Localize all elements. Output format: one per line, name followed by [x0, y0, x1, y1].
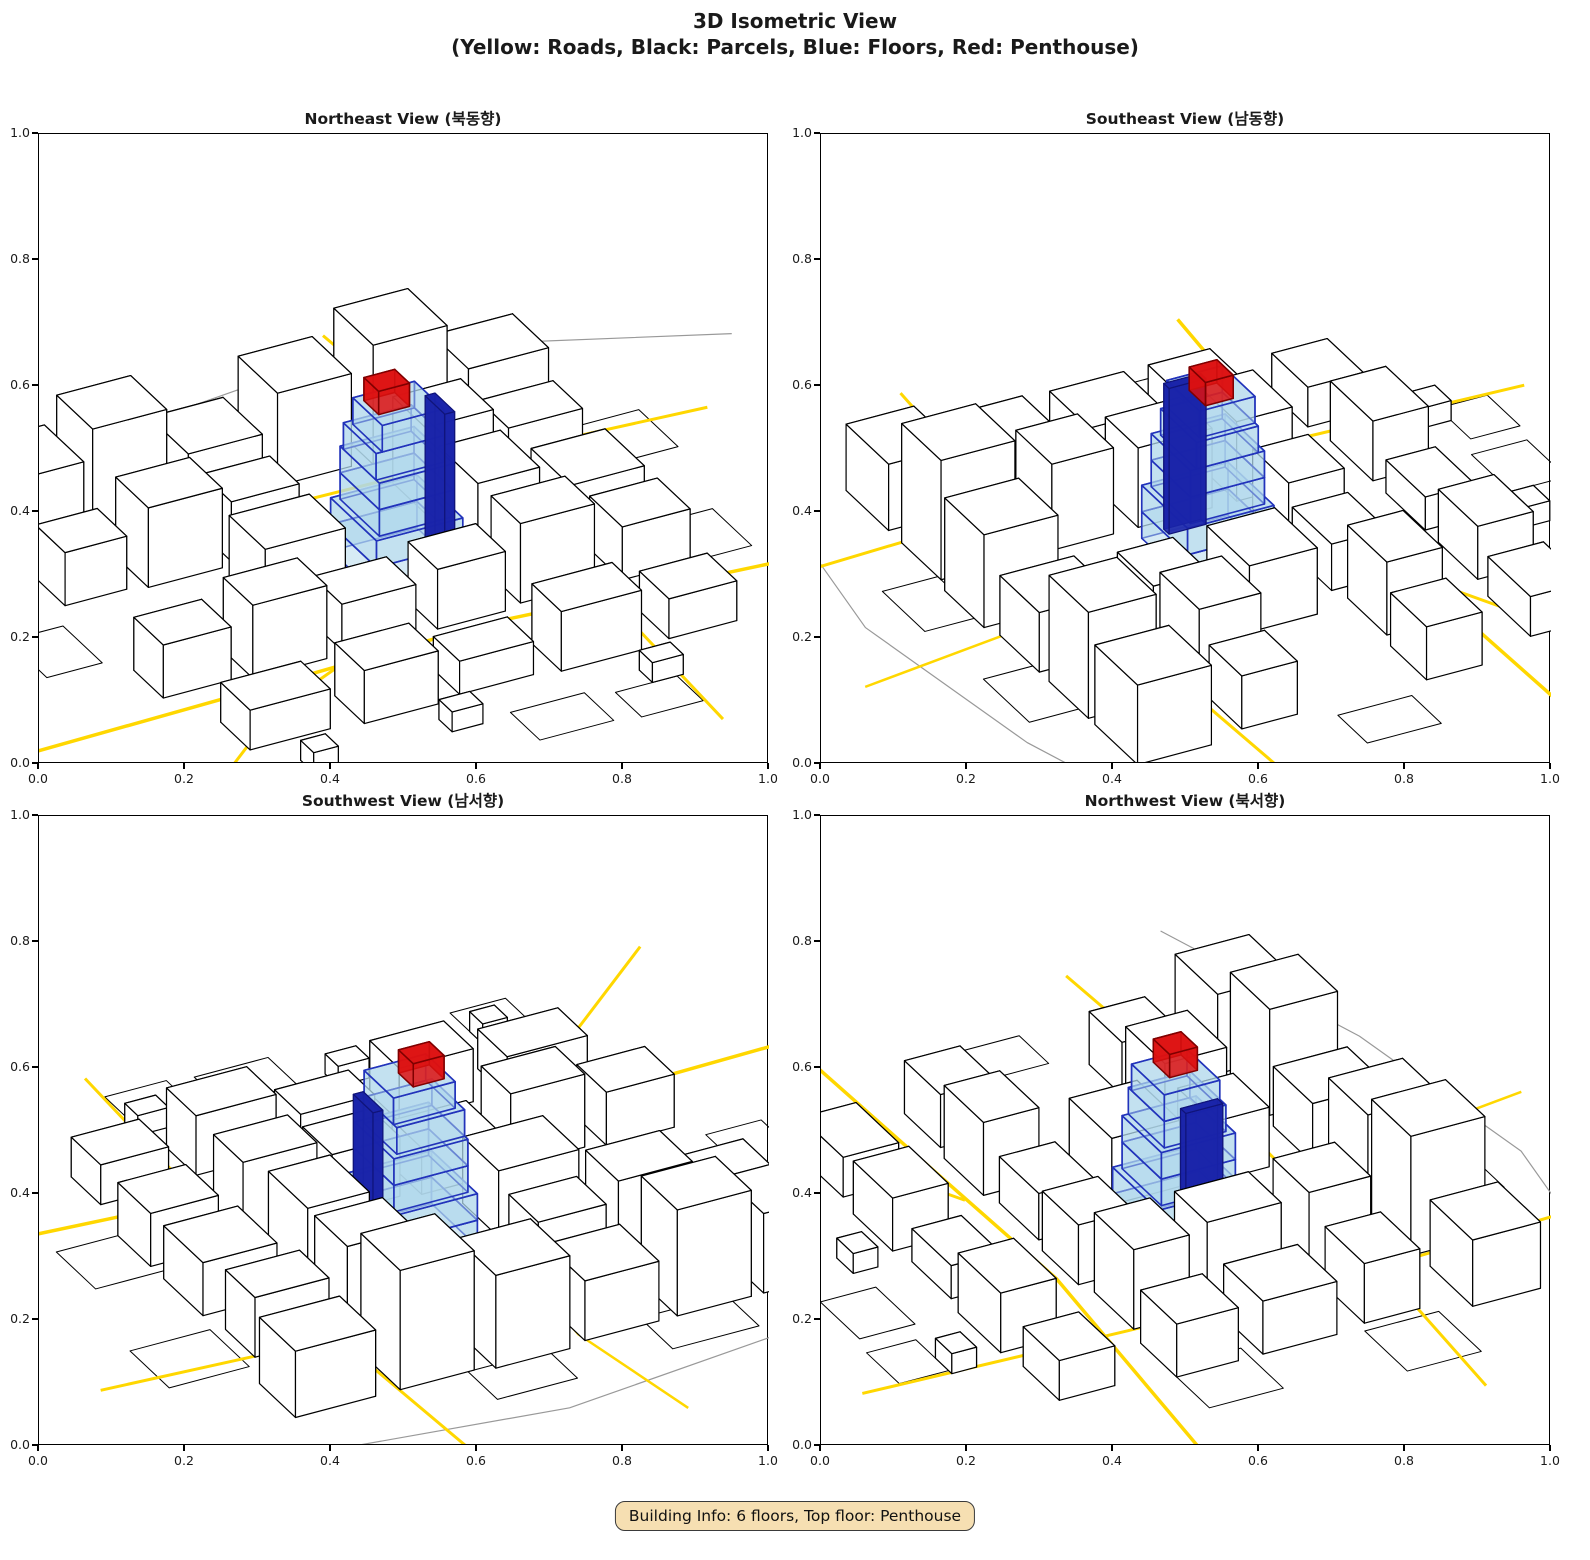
buildings-layer [821, 935, 1540, 1401]
subplot-title-southwest: Southwest View (남서향) [38, 789, 768, 811]
x-tick-label: 0.6 [1239, 1453, 1277, 1468]
y-tick-label: 0.2 [0, 1311, 30, 1326]
x-tick-mark [819, 1445, 820, 1451]
x-tick-mark [965, 1445, 966, 1451]
x-tick-mark [819, 763, 820, 769]
x-tick-label: 0.6 [457, 1453, 495, 1468]
x-tick-label: 0.4 [311, 771, 349, 786]
plot-area-southeast [820, 133, 1550, 763]
x-tick-label: 0.2 [165, 1453, 203, 1468]
y-tick-label: 1.0 [772, 125, 812, 140]
x-tick-mark [621, 763, 622, 769]
x-tick-mark [1549, 1445, 1550, 1451]
southwest-scene [39, 816, 769, 1444]
y-tick-mark [32, 636, 38, 637]
y-tick-mark [814, 814, 820, 815]
y-tick-mark [814, 1318, 820, 1319]
y-tick-label: 0.2 [0, 629, 30, 644]
x-tick-label: 0.2 [947, 1453, 985, 1468]
x-tick-label: 0.6 [457, 771, 495, 786]
y-tick-mark [814, 1192, 820, 1193]
northeast-scene [39, 134, 769, 762]
buildings-layer [39, 289, 737, 762]
figure-title-line2: (Yellow: Roads, Black: Parcels, Blue: Fl… [0, 34, 1590, 60]
x-tick-mark [37, 1445, 38, 1451]
x-tick-label: 1.0 [749, 771, 787, 786]
x-tick-label: 1.0 [1531, 1453, 1569, 1468]
y-tick-mark [32, 384, 38, 385]
y-tick-mark [814, 258, 820, 259]
y-tick-mark [32, 258, 38, 259]
x-tick-mark [1403, 763, 1404, 769]
y-tick-label: 0.0 [772, 755, 812, 770]
y-tick-mark [32, 510, 38, 511]
y-tick-label: 0.4 [0, 1185, 30, 1200]
y-tick-label: 0.4 [772, 1185, 812, 1200]
x-tick-label: 1.0 [749, 1453, 787, 1468]
x-tick-label: 0.8 [1385, 1453, 1423, 1468]
x-tick-mark [329, 763, 330, 769]
y-tick-label: 0.0 [0, 1437, 30, 1452]
x-tick-label: 0.4 [311, 1453, 349, 1468]
plot-area-southwest [38, 815, 768, 1445]
y-tick-label: 0.6 [0, 1059, 30, 1074]
buildings-layer [846, 339, 1551, 762]
y-tick-label: 0.8 [0, 251, 30, 266]
subplot-title-northeast: Northeast View (북동향) [38, 107, 768, 129]
x-tick-mark [767, 763, 768, 769]
y-tick-mark [814, 510, 820, 511]
y-tick-mark [32, 1192, 38, 1193]
y-tick-mark [32, 132, 38, 133]
northwest-scene [821, 816, 1551, 1444]
x-tick-mark [621, 1445, 622, 1451]
x-tick-mark [329, 1445, 330, 1451]
y-tick-label: 0.2 [772, 629, 812, 644]
x-tick-label: 0.0 [801, 1453, 839, 1468]
y-tick-label: 0.6 [772, 1059, 812, 1074]
x-tick-mark [1257, 1445, 1258, 1451]
y-tick-mark [32, 1318, 38, 1319]
x-tick-label: 0.4 [1093, 771, 1131, 786]
subplot-title-southeast: Southeast View (남동향) [820, 107, 1550, 129]
southeast-scene [821, 134, 1551, 762]
x-tick-mark [767, 1445, 768, 1451]
y-tick-mark [814, 636, 820, 637]
x-tick-mark [183, 763, 184, 769]
x-tick-label: 0.4 [1093, 1453, 1131, 1468]
x-tick-label: 0.0 [801, 771, 839, 786]
x-tick-label: 0.8 [1385, 771, 1423, 786]
y-tick-label: 0.8 [0, 933, 30, 948]
buildings-layer [71, 1005, 769, 1417]
subplot-title-northwest: Northwest View (북서향) [820, 789, 1550, 811]
x-tick-label: 0.8 [603, 1453, 641, 1468]
y-tick-label: 0.6 [0, 377, 30, 392]
building-info-badge: Building Info: 6 floors, Top floor: Pent… [615, 1501, 975, 1531]
x-tick-mark [1549, 763, 1550, 769]
plot-area-northwest [820, 815, 1550, 1445]
y-tick-label: 1.0 [772, 807, 812, 822]
y-tick-mark [32, 940, 38, 941]
y-tick-label: 1.0 [0, 807, 30, 822]
y-tick-label: 0.8 [772, 251, 812, 266]
y-tick-mark [814, 1066, 820, 1067]
penthouse-box [399, 1042, 445, 1087]
plot-area-northeast [38, 133, 768, 763]
x-tick-mark [1111, 763, 1112, 769]
y-tick-label: 0.8 [772, 933, 812, 948]
x-tick-mark [1403, 1445, 1404, 1451]
x-tick-label: 0.0 [19, 771, 57, 786]
x-tick-label: 0.2 [165, 771, 203, 786]
x-tick-label: 0.6 [1239, 771, 1277, 786]
x-tick-mark [475, 1445, 476, 1451]
x-tick-mark [965, 763, 966, 769]
y-tick-label: 0.4 [0, 503, 30, 518]
x-tick-mark [37, 763, 38, 769]
penthouse-box [364, 369, 410, 414]
y-tick-label: 0.0 [0, 755, 30, 770]
x-tick-label: 0.0 [19, 1453, 57, 1468]
x-tick-label: 0.2 [947, 771, 985, 786]
y-tick-label: 1.0 [0, 125, 30, 140]
y-tick-label: 0.0 [772, 1437, 812, 1452]
x-tick-label: 1.0 [1531, 771, 1569, 786]
y-tick-mark [814, 384, 820, 385]
x-tick-mark [1257, 763, 1258, 769]
y-tick-label: 0.6 [772, 377, 812, 392]
figure-canvas: 3D Isometric View (Yellow: Roads, Black:… [0, 0, 1590, 1560]
y-tick-mark [814, 940, 820, 941]
x-tick-mark [1111, 1445, 1112, 1451]
x-tick-mark [475, 763, 476, 769]
x-tick-label: 0.8 [603, 771, 641, 786]
x-tick-mark [183, 1445, 184, 1451]
y-tick-mark [32, 1066, 38, 1067]
y-tick-mark [32, 814, 38, 815]
y-tick-label: 0.4 [772, 503, 812, 518]
figure-title-line1: 3D Isometric View [0, 8, 1590, 34]
y-tick-label: 0.2 [772, 1311, 812, 1326]
y-tick-mark [814, 132, 820, 133]
